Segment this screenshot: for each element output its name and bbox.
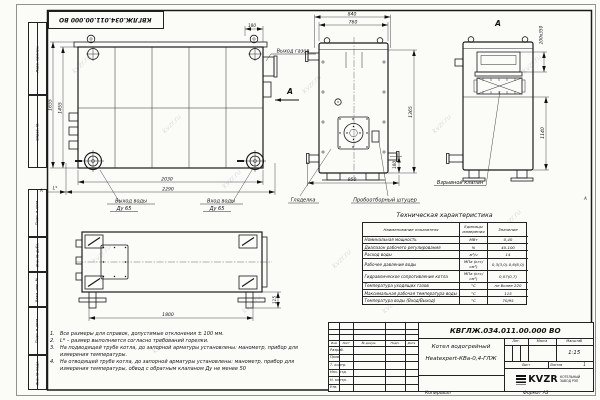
dim-l-star: L* — [53, 186, 59, 192]
margin-label: Подп. и дата — [36, 201, 40, 225]
margin-label: Перв. примен. — [36, 45, 40, 72]
zone-letter-right: А — [584, 196, 587, 201]
tb-sheet-label: Лист — [504, 361, 548, 368]
tb-lit-label: Лит. — [504, 338, 528, 345]
label-water-outlet: Выход воды — [115, 199, 147, 205]
tech-cell: 115 — [488, 289, 528, 296]
drawing-sheet: kvzr.ru kvzr.ru kvzr.ru kvzr.ru kvzr.ru … — [0, 0, 600, 400]
sampling-fitting — [372, 131, 379, 142]
kvzr-logo-subtitle: КОТЕЛЬНЫЙ ЗАВОД РЭП — [560, 376, 580, 383]
tech-cell: не более 220 — [488, 282, 528, 289]
tech-col-header: Единицы измерения — [460, 223, 488, 236]
explosion-valve — [474, 78, 525, 94]
tech-cell: 0,07(0,7) — [488, 270, 528, 282]
dim-1140: 1140 — [540, 127, 546, 139]
dim-1800: 1800 — [162, 312, 174, 318]
water-inlet-flange — [237, 150, 266, 172]
notes-block: 1.Все размеры для справок, допустимые от… — [50, 331, 322, 373]
note-line: 3.На подводящей трубе котла, до запорной… — [50, 345, 322, 359]
label-explosion-valve: Взрывной клапан — [437, 180, 484, 186]
dim-760: 760 — [349, 20, 358, 26]
margin-stamp-vzam-inv: Взам. инв. № — [28, 272, 47, 307]
tech-cell: Диапазон рабочего регулирования — [363, 243, 460, 250]
tb-doc-number: КВГЛЖ.034.011.00.000 ВО — [418, 323, 593, 338]
tb-mass-label: Масса — [528, 338, 556, 345]
tb-hdr-podp: Подп. — [385, 340, 405, 347]
tb-role-tkontr: Т. контр. — [330, 361, 353, 369]
label-water-inlet: Вход воды — [207, 199, 235, 205]
margin-stamp-podp-data-1: Подп. и дата — [28, 189, 47, 237]
tb-role-razrab: Разраб. — [330, 346, 353, 354]
tech-col-header: Значение — [488, 223, 528, 236]
section-title: А — [494, 19, 501, 28]
tech-cell: Температура воды (Вход/Выход) — [363, 296, 460, 303]
tech-cell: Гидравлическое сопротивление котла — [363, 270, 460, 282]
tech-characteristics: Техническая характеристика Наименование … — [362, 212, 527, 305]
tech-table: Наименование показателя Единицы измерени… — [362, 222, 527, 305]
note-number: 1. — [50, 331, 60, 338]
tb-hdr-data: Дата — [405, 340, 418, 347]
tech-cell: м³/ч — [460, 250, 488, 257]
tb-sheets-label: Листов — [550, 361, 576, 368]
tech-cell: °С — [460, 282, 488, 289]
note-line: 4.На отводящей трубе котла, до запорной … — [50, 359, 322, 373]
note-text: Все размеры для справок, допустимые откл… — [60, 331, 224, 338]
section-view: А 200х350 — [434, 19, 549, 186]
margin-label: Подп. и дата — [36, 319, 40, 343]
kvzr-logo-icon — [516, 375, 526, 385]
margin-stamp-inv-dubl: Инв. № дубл. — [28, 237, 47, 272]
tech-table-title: Техническая характеристика — [362, 212, 527, 219]
tech-cell: 40-100 — [488, 243, 528, 250]
note-text: L* – размер выполняется согласно требова… — [60, 338, 209, 345]
tb-role-utv: Утв. — [330, 384, 353, 392]
tb-role-nkontr: Н. контр. — [330, 376, 353, 384]
tech-col-header: Наименование показателя — [363, 223, 460, 236]
top-view: 1800 115 — [76, 232, 281, 321]
tech-cell: 0,3(3,0)-0,6(6,0) — [488, 258, 528, 270]
side-view: 1655 1455 180 2030 2290 L* Выход воды Ду… — [48, 23, 278, 212]
note-line: 1.Все размеры для справок, допустимые от… — [50, 331, 322, 338]
margin-stamp-perv-primen: Перв. примен. — [28, 22, 47, 95]
note-text: На отводящей трубе котла, до запорной ар… — [60, 359, 322, 373]
label-sight-glass: Гляделка — [291, 198, 316, 204]
top-doc-number-stamp: КВГЛЖ.034.011.00.000 ВО — [48, 11, 164, 29]
tech-cell: °С — [460, 296, 488, 303]
dim-840: 840 — [348, 12, 357, 18]
tb-sheets-value: 1 — [577, 361, 592, 368]
dim-2030: 2030 — [161, 177, 173, 183]
gas-duct-opening — [475, 52, 522, 76]
front-view: 840 760 1365 180 950 Выход газов А Гляде… — [266, 12, 420, 204]
dim-180-side: 180 — [248, 23, 256, 28]
tech-cell: Номинальная мощность — [363, 236, 460, 243]
label-gas-outlet: Выход газов — [277, 49, 310, 55]
kvzr-sub-2: ЗАВОД РЭП — [560, 380, 580, 384]
tech-cell: Расход воды — [363, 250, 460, 257]
tech-cell: °С — [460, 289, 488, 296]
tech-cell: Температура уходящих газов — [363, 282, 460, 289]
view-arrow-letter: А — [286, 87, 293, 96]
dim-1365: 1365 — [408, 106, 414, 118]
label-water-outlet-dn: Ду 65 — [116, 206, 132, 212]
tb-role-prov: Пров. — [330, 354, 353, 362]
tech-cell: Рабочее давление воды — [363, 258, 460, 270]
format-label: Формат А3 — [523, 391, 549, 396]
tb-scale-value: 1:15 — [556, 345, 593, 362]
tech-cell: 14 — [488, 250, 528, 257]
tech-cell: МВт — [460, 236, 488, 243]
label-sampling-fitting: Пробоотборный штуцер — [353, 198, 417, 204]
margin-stamp-podp-data-2: Подп. и дата — [28, 307, 47, 355]
tech-cell: 70/95 — [488, 296, 528, 303]
label-water-inlet-dn: Ду 65 — [209, 206, 225, 212]
copied-label: Копировал — [425, 391, 451, 396]
tb-role-nachotd: Нач. отд. — [330, 369, 353, 377]
tech-cell: МПа (кгс/см²) — [460, 258, 488, 270]
dim-2290: 2290 — [162, 187, 174, 193]
margin-stamp-inv-podl: Инв. № подл. — [28, 355, 47, 390]
tech-cell: Максимальная рабочая температура воды — [363, 289, 460, 296]
margin-stamp-sprav-no: Справ. № — [28, 95, 47, 168]
note-number: 4. — [50, 359, 60, 373]
tech-cell: 0,40 — [488, 236, 528, 243]
margin-label: Взам. инв. № — [36, 277, 40, 301]
dim-115: 115 — [272, 296, 277, 304]
gas-outlet-stub — [263, 56, 277, 97]
water-outlet-flange — [75, 150, 104, 172]
manufacturer-logo: KVZR КОТЕЛЬНЫЙ ЗАВОД РЭП — [504, 368, 593, 391]
burner-door — [338, 117, 369, 149]
note-text: На подводящей трубе котла, до запорной а… — [60, 345, 322, 359]
tb-product-model: Heatexpert-КВа-0,4-ГЛЖ — [418, 352, 504, 366]
note-number: 3. — [50, 345, 60, 359]
tb-hdr-docnum: № докум. — [353, 340, 385, 347]
margin-label: Инв. № подл. — [36, 360, 40, 385]
kvzr-logo-text: KVZR — [528, 374, 558, 385]
tech-cell: МПа (кгс/см²) — [460, 270, 488, 282]
title-block: Изм Лист № докум. Подп. Дата Разраб. Про… — [328, 322, 594, 392]
margin-label: Инв. № дубл. — [36, 242, 40, 267]
dim-opening: 200х350 — [539, 25, 544, 44]
top-doc-number: КВГЛЖ.034.011.00.000 ВО — [59, 16, 151, 23]
note-line: 2.L* – размер выполняется согласно требо… — [50, 338, 322, 345]
dim-1655: 1655 — [48, 99, 54, 111]
dim-950: 950 — [348, 177, 357, 183]
dim-1455: 1455 — [58, 102, 64, 114]
note-number: 2. — [50, 338, 60, 345]
zone-letter-left: А — [40, 188, 43, 193]
tech-cell: % — [460, 243, 488, 250]
margin-label: Справ. № — [36, 123, 40, 140]
dim-180-front: 180 — [392, 161, 397, 169]
